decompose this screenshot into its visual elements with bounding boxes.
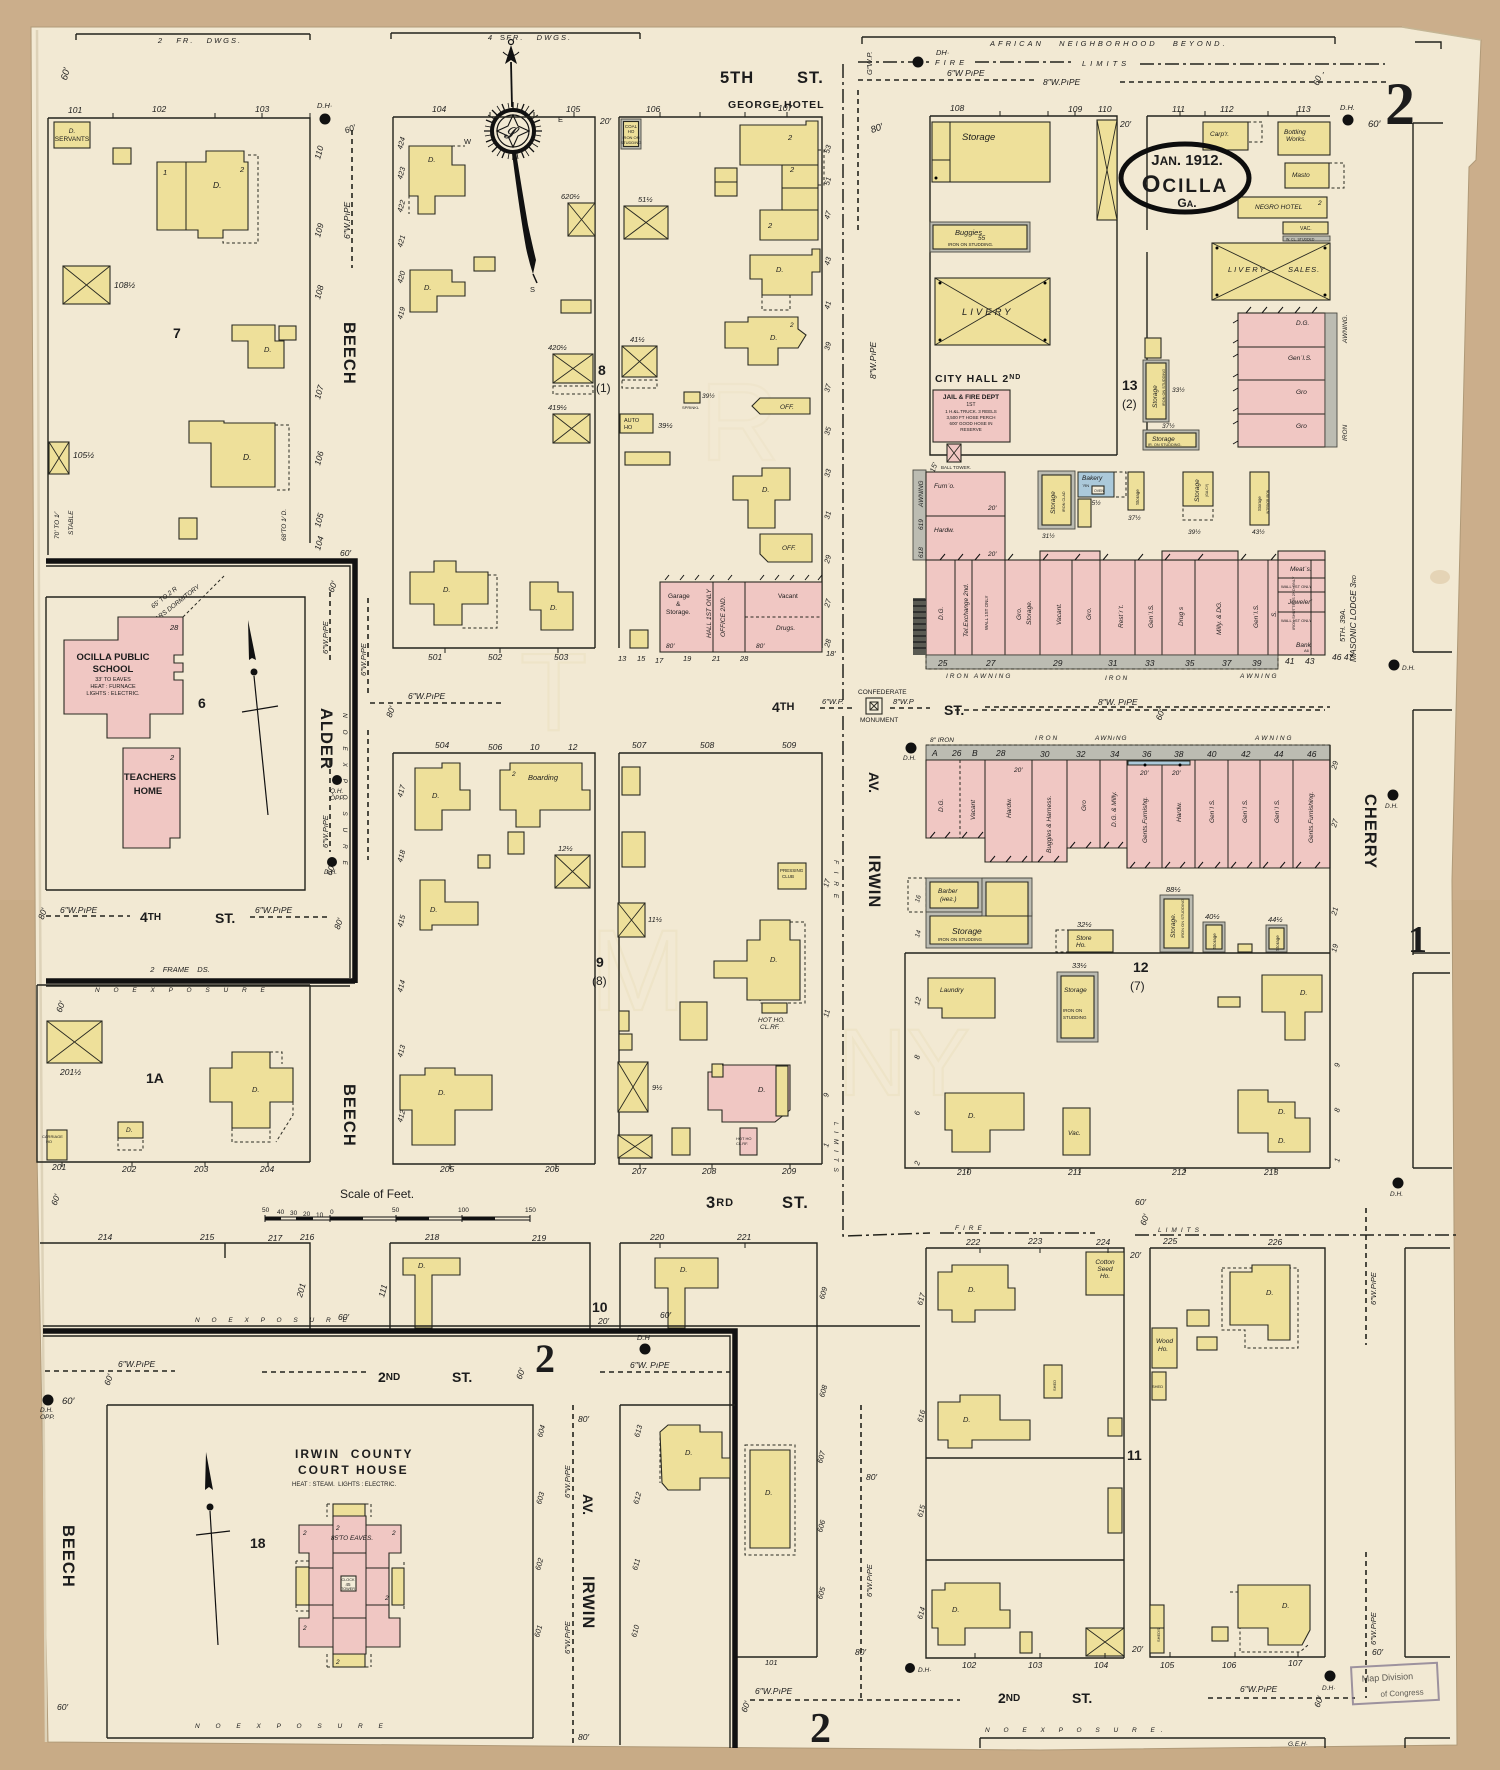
svg-text:6″W.PıPE: 6″W.PıPE [1369, 1611, 1378, 1645]
svg-text:D.: D. [1266, 1288, 1274, 1297]
svg-text:G″W.P.: G″W.P. [865, 52, 874, 76]
svg-text:8: 8 [598, 362, 606, 378]
svg-text:CL.RF.: CL.RF. [736, 1141, 748, 1146]
svg-text:LIMITS: LIMITS [1158, 1227, 1203, 1234]
svg-text:D.: D. [213, 180, 222, 190]
svg-text:Gro: Gro [1296, 389, 1307, 396]
svg-text:105½: 105½ [73, 450, 94, 460]
svg-text:11½: 11½ [648, 915, 663, 924]
svg-text:Genʾl S.: Genʾl S. [1241, 799, 1249, 823]
svg-text:509: 509 [782, 740, 796, 750]
svg-text:BALL TOWER.: BALL TOWER. [941, 465, 971, 470]
svg-text:11: 11 [1127, 1447, 1142, 1463]
svg-text:101: 101 [765, 1658, 778, 1667]
svg-text:213: 213 [1263, 1167, 1278, 1177]
svg-text:(GA.CY): (GA.CY) [1205, 484, 1209, 497]
svg-text:0: 0 [330, 1209, 334, 1216]
svg-text:6″W.PıPE: 6″W.PıPE [118, 1359, 156, 1369]
svg-text:31½: 31½ [1042, 532, 1055, 540]
svg-text:Ho.: Ho. [1158, 1346, 1168, 1353]
svg-text:6: 6 [198, 695, 206, 711]
svg-text:OFFICE 2ND.: OFFICE 2ND. [720, 596, 727, 637]
svg-text:(7): (7) [1130, 979, 1145, 993]
svg-text:Tel.Exchange 2nd.: Tel.Exchange 2nd. [963, 583, 970, 637]
svg-text:FIRE: FIRE [935, 58, 968, 67]
svg-text:18: 18 [250, 1535, 266, 1551]
svg-text:Gro.: Gro. [1086, 607, 1093, 620]
svg-text:8″W.PıPE: 8″W.PıPE [868, 341, 878, 379]
svg-text:HEAT : FURNACE: HEAT : FURNACE [90, 684, 136, 690]
svg-text:60′: 60′ [660, 1310, 671, 1320]
svg-text:D.: D. [550, 603, 558, 612]
svg-text:55: 55 [978, 235, 986, 242]
svg-text:AV.: AV. [580, 1494, 596, 1515]
svg-text:Genʾl.S.: Genʾl.S. [1147, 604, 1155, 628]
svg-text:39½: 39½ [658, 421, 673, 430]
svg-text:80′: 80′ [666, 643, 675, 650]
svg-text:Genʾl S.: Genʾl S. [1273, 799, 1281, 823]
svg-text:Storage.: Storage. [666, 609, 691, 616]
svg-text:219: 219 [531, 1233, 546, 1243]
svg-text:6″W.PıPE: 6″W.PıPE [1240, 1684, 1278, 1694]
svg-text:CHERRY: CHERRY [1361, 794, 1379, 869]
svg-text:D.: D. [762, 485, 770, 494]
svg-text:105: 105 [566, 104, 580, 114]
svg-text:Hardw.: Hardw. [1006, 798, 1013, 818]
svg-text:Jewelerʿ: Jewelerʿ [1287, 598, 1313, 606]
svg-text:D.H·: D.H· [317, 101, 332, 110]
svg-text:2: 2 [335, 1659, 340, 1666]
svg-text:OCILLA PUBLIC: OCILLA PUBLIC [76, 652, 149, 663]
svg-text:D.: D. [69, 128, 76, 135]
svg-text:212: 212 [1171, 1167, 1186, 1177]
svg-text:INTERIOR IRON: INTERIOR IRON [1266, 489, 1270, 514]
svg-text:60′: 60′ [1135, 1197, 1146, 1207]
svg-text:N O E X P O S U R E.: N O E X P O S U R E. [985, 1727, 1169, 1734]
svg-text:D.H·: D.H· [918, 1667, 931, 1674]
svg-text:(1): (1) [596, 381, 611, 395]
svg-text:2: 2 [391, 1530, 396, 1537]
svg-text:D.: D. [243, 452, 252, 462]
svg-text:ST.: ST. [1072, 1690, 1092, 1706]
svg-text:506: 506 [488, 742, 502, 752]
svg-text:IRON ON: IRON ON [1063, 1008, 1082, 1013]
svg-text:VАC.: VАC. [1300, 226, 1312, 232]
svg-text:103: 103 [1028, 1660, 1042, 1670]
svg-text:D.: D. [1282, 1601, 1290, 1610]
svg-text:SHEDS: SHEDS [1156, 1628, 1161, 1642]
svg-text:Milly. & DG.: Milly. & DG. [1216, 601, 1223, 635]
svg-text:34: 34 [1110, 749, 1120, 759]
svg-text:D.: D. [776, 265, 784, 274]
svg-text:D.: D. [1278, 1136, 1286, 1145]
svg-text:Garage: Garage [668, 593, 690, 600]
svg-text:210: 210 [956, 1167, 971, 1177]
svg-text:26: 26 [951, 748, 962, 758]
svg-text:2 FR. DWGS.: 2 FR. DWGS. [157, 36, 242, 45]
svg-text:40½: 40½ [1205, 912, 1220, 921]
svg-text:Masto: Masto [1292, 172, 1310, 179]
svg-text:19: 19 [683, 654, 692, 663]
svg-text:33′ TO EAVES: 33′ TO EAVES [95, 677, 131, 683]
svg-text:D.H: D.H [637, 1333, 651, 1342]
svg-text:WALL 1ST ONLY: WALL 1ST ONLY [1281, 618, 1312, 623]
svg-text:L I M I T S: L I M I T S [832, 1122, 839, 1174]
svg-text:419½: 419½ [548, 403, 568, 412]
svg-text:2: 2 [789, 165, 795, 174]
svg-text:Cotton: Cotton [1095, 1259, 1115, 1266]
svg-text:203: 203 [193, 1164, 208, 1174]
svg-text:SHED: SHED [1052, 1380, 1057, 1391]
svg-text:7: 7 [173, 325, 181, 341]
svg-text:6″W.PıPE: 6″W.PıPE [563, 1464, 572, 1498]
svg-text:Storage: Storage [1194, 479, 1201, 502]
svg-text:111: 111 [1172, 104, 1185, 114]
svg-text:6″W.PıPE: 6″W.PıPE [321, 620, 330, 654]
svg-text:1: 1 [1408, 919, 1427, 961]
svg-text:D.G. & Milly.: D.G. & Milly. [1111, 791, 1118, 827]
svg-text:5TH: 5TH [720, 69, 754, 87]
svg-text:Ho.: Ho. [1100, 1273, 1110, 1280]
svg-text:IRON ON STUDDING: IRON ON STUDDING [1162, 369, 1166, 406]
svg-text:N O E X P O S U R E: N O E X P O S U R E [95, 987, 271, 994]
svg-text:41½: 41½ [630, 335, 645, 344]
svg-text:2: 2 [384, 1595, 389, 1602]
svg-text:20′: 20′ [597, 1316, 609, 1326]
svg-text:2: 2 [239, 165, 245, 174]
svg-text:508: 508 [700, 740, 714, 750]
svg-text:S: S [530, 285, 535, 294]
svg-text:ST.: ST. [782, 1194, 809, 1212]
svg-text:D.: D. [685, 1448, 693, 1457]
svg-text:2ND: 2ND [998, 1690, 1020, 1706]
svg-text:(8): (8) [592, 974, 607, 988]
svg-text:30: 30 [290, 1210, 298, 1217]
svg-text:208: 208 [701, 1166, 716, 1176]
svg-text:AFRICAN NEIGHBORHOOD BEYON: AFRICAN NEIGHBORHOOD BEYOND. [989, 39, 1228, 48]
svg-text:9: 9 [596, 954, 604, 970]
svg-text:TOWER: TOWER [341, 1587, 355, 1591]
svg-text:150: 150 [525, 1207, 536, 1214]
svg-text:8″W.PıPE: 8″W.PıPE [1043, 77, 1081, 87]
svg-text:(2): (2) [1122, 397, 1137, 411]
svg-text:8″ IRON: 8″ IRON [930, 737, 954, 744]
svg-text:107: 107 [778, 103, 792, 113]
svg-text:88½: 88½ [1166, 885, 1181, 894]
svg-text:D.H.: D.H. [903, 755, 916, 762]
svg-text:JAN. 1912.: JAN. 1912. [1151, 152, 1223, 169]
svg-text:105: 105 [1160, 1660, 1174, 1670]
svg-text:Storage: Storage [1050, 491, 1057, 514]
svg-text:Gents.Furnishg.: Gents.Furnishg. [1142, 797, 1149, 843]
svg-text:221: 221 [736, 1232, 751, 1242]
svg-text:D.: D. [264, 345, 272, 354]
svg-text:20′: 20′ [1139, 770, 1149, 777]
svg-text:600′ GOOD HOSE IN: 600′ GOOD HOSE IN [949, 421, 992, 426]
svg-text:AWNING.: AWNING. [1342, 314, 1349, 344]
svg-text:10: 10 [592, 1299, 608, 1315]
svg-text:32½: 32½ [1077, 920, 1092, 929]
svg-text:2: 2 [169, 753, 175, 762]
svg-text:D.H.: D.H. [1385, 803, 1398, 810]
svg-text:IRWIN: IRWIN [579, 1576, 597, 1629]
svg-text:1A: 1A [146, 1070, 164, 1086]
svg-text:Boarding: Boarding [528, 773, 559, 782]
svg-text:107: 107 [1288, 1658, 1302, 1668]
svg-text:204: 204 [259, 1164, 274, 1174]
svg-text:S.: S. [1271, 611, 1278, 617]
svg-text:R: R [700, 361, 779, 484]
svg-text:CL.RF.: CL.RF. [760, 1024, 780, 1031]
svg-text:15: 15 [637, 654, 646, 663]
svg-text:40: 40 [277, 1209, 285, 1216]
svg-text:Storage.: Storage. [1170, 913, 1177, 938]
svg-text:AUTO: AUTO [624, 418, 640, 424]
svg-text:43: 43 [1305, 656, 1315, 666]
svg-text:STABLE: STABLE [68, 510, 75, 535]
svg-text:Storage: Storage [1064, 987, 1087, 994]
svg-text:218: 218 [424, 1232, 439, 1242]
svg-text:ST.: ST. [215, 910, 235, 926]
svg-text:620½: 620½ [561, 192, 581, 201]
svg-text:8″W. PıPE: 8″W. PıPE [1098, 697, 1138, 707]
svg-text:40: 40 [1207, 749, 1217, 759]
svg-text:D.: D. [770, 333, 778, 342]
svg-text:IRON ON STUDDING: IRON ON STUDDING [1180, 899, 1185, 938]
svg-text:OCILLA: OCILLA [1142, 171, 1229, 198]
svg-text:D.: D. [952, 1605, 960, 1614]
svg-text:SАLES.: SАLES. [1288, 265, 1320, 274]
svg-text:85′TO EAVES.: 85′TO EAVES. [331, 1535, 373, 1542]
svg-text:OPP.: OPP. [330, 795, 345, 802]
svg-text:DH·: DH· [936, 48, 949, 57]
svg-text:2ND: 2ND [378, 1369, 400, 1385]
svg-text:LIVERY: LIVERY [1228, 265, 1266, 274]
svg-text:ʾRN: ʾRN [1082, 483, 1089, 488]
svg-text:F I R E: F I R E [832, 860, 839, 901]
svg-text:1 H.&L.TRUCK. 3 REELS: 1 H.&L.TRUCK. 3 REELS [945, 409, 997, 414]
svg-text:Genʾl.S.: Genʾl.S. [1288, 354, 1312, 362]
svg-text:S: S [500, 33, 505, 42]
svg-text:60′: 60′ [57, 1702, 68, 1712]
svg-text:205: 205 [439, 1164, 454, 1174]
svg-text:6″W.PıPE: 6″W.PıPE [255, 905, 293, 915]
svg-text:215: 215 [199, 1232, 214, 1242]
svg-text:4TH: 4TH [772, 699, 795, 715]
svg-text:IRWIN: IRWIN [865, 855, 883, 908]
svg-text:25: 25 [937, 658, 948, 668]
svg-text:102: 102 [152, 104, 166, 114]
svg-text:206: 206 [544, 1164, 559, 1174]
svg-text:HEAT : STEAM. LIGHTS : ELECTR: HEAT : STEAM. LIGHTS : ELECTRIC. [292, 1482, 396, 1488]
svg-text:Store: Store [1076, 935, 1092, 942]
svg-text:HOT HO.: HOT HO. [758, 1017, 785, 1024]
svg-text:2: 2 [535, 1336, 555, 1381]
svg-text:6″W PıPE: 6″W PıPE [947, 68, 985, 78]
svg-text:207: 207 [631, 1166, 646, 1176]
svg-text:IRON: IRON [1035, 735, 1059, 742]
svg-text:46 47: 46 47 [1332, 652, 1354, 662]
svg-text:2: 2 [1385, 71, 1415, 137]
svg-text:Gro: Gro [1296, 423, 1307, 430]
svg-text:618: 618 [918, 547, 925, 558]
svg-text:17: 17 [655, 656, 664, 665]
svg-text:D.G.: D.G. [1296, 320, 1310, 327]
svg-text:101: 101 [68, 105, 82, 115]
svg-text:504: 504 [435, 740, 449, 750]
svg-text:D.: D. [432, 791, 440, 800]
svg-text:420½: 420½ [548, 343, 568, 352]
svg-text:Storage: Storage [1275, 935, 1280, 951]
svg-text:IRON AWNING: IRON AWNING [946, 673, 1012, 680]
svg-text:D.H.: D.H. [1402, 665, 1415, 672]
svg-text:ST.: ST. [797, 69, 824, 87]
svg-text:ST.: ST. [452, 1369, 472, 1385]
svg-text:D.: D. [968, 1285, 976, 1294]
svg-text:Hardw.: Hardw. [1176, 802, 1183, 822]
svg-text:OPP.: OPP. [40, 1414, 55, 1421]
svg-text:D.: D. [443, 585, 451, 594]
svg-text:Vacant: Vacant [970, 799, 977, 820]
svg-text:20′: 20′ [1013, 767, 1023, 774]
svg-text:AWNıNG: AWNıNG [1094, 735, 1128, 742]
svg-text:44: 44 [1274, 749, 1284, 759]
svg-text:IRWIN COUNTY: IRWIN COUNTY [295, 1447, 413, 1461]
svg-text:30: 30 [1040, 749, 1050, 759]
svg-text:Drug s: Drug s [1178, 606, 1185, 626]
svg-text:50: 50 [392, 1207, 400, 1214]
svg-text:Gents.Furnishing.: Gents.Furnishing. [1308, 792, 1315, 843]
svg-text:20′: 20′ [987, 505, 997, 512]
svg-text:CITY HALL 2ND: CITY HALL 2ND [935, 373, 1021, 385]
svg-text:20′: 20′ [1129, 1250, 1141, 1260]
svg-text:2 FRAME DS.: 2 FRAME DS. [149, 965, 210, 974]
svg-text:HOME: HOME [134, 786, 163, 797]
svg-text:Bakery: Bakery [1082, 475, 1103, 482]
svg-text:D.: D. [765, 1488, 773, 1497]
svg-text:20′: 20′ [987, 551, 997, 558]
svg-text:33½: 33½ [1072, 961, 1087, 970]
svg-text:2: 2 [767, 221, 773, 230]
svg-text:80′: 80′ [578, 1732, 589, 1742]
svg-text:6″W.PıPE: 6″W.PıPE [865, 1563, 874, 1597]
svg-text:Wood: Wood [1156, 1338, 1173, 1345]
svg-text:226: 226 [1267, 1237, 1282, 1247]
svg-text:Storage: Storage [1152, 385, 1159, 408]
svg-text:Storage: Storage [1257, 496, 1262, 511]
svg-text:2: 2 [810, 1706, 831, 1752]
svg-text:SPRINKL: SPRINKL [682, 405, 700, 410]
svg-text:W. CL. STUDDED: W. CL. STUDDED [1286, 238, 1315, 242]
svg-text:224: 224 [1095, 1237, 1110, 1247]
svg-text:N O E X P O S U R E: N O E X P O S U R E [195, 1723, 390, 1730]
svg-text:D.: D. [418, 1261, 426, 1270]
svg-text:HO: HO [628, 129, 635, 134]
svg-text:10: 10 [316, 1212, 324, 1219]
svg-text:37½: 37½ [1162, 422, 1175, 430]
svg-text:31: 31 [1108, 658, 1118, 668]
svg-text:AWNING: AWNING [918, 480, 925, 508]
svg-text:FIRE: FIRE [955, 1225, 986, 1232]
svg-text:D.H.: D.H. [1340, 103, 1355, 112]
svg-text:Storage: Storage [1152, 436, 1175, 443]
svg-text:27: 27 [985, 658, 996, 668]
svg-text:PRESSING: PRESSING [780, 868, 804, 873]
svg-text:Storage: Storage [962, 132, 995, 143]
svg-text:214: 214 [97, 1232, 112, 1242]
svg-text:D.H.: D.H. [40, 1407, 53, 1414]
svg-text:W: W [464, 137, 472, 146]
svg-text:80′: 80′ [866, 1472, 877, 1482]
svg-text:42: 42 [1241, 749, 1251, 759]
svg-text:LIMITS: LIMITS [1082, 59, 1130, 68]
svg-text:D.: D. [968, 1111, 976, 1120]
svg-text:IRON: IRON [1342, 424, 1349, 441]
svg-text:Hardw.: Hardw. [934, 527, 954, 534]
svg-text:1ST: 1ST [966, 402, 975, 408]
svg-text:Q.H.: Q.H. [330, 788, 344, 795]
svg-text:3,500 FT HOSE PERCH: 3,500 FT HOSE PERCH [947, 415, 996, 420]
svg-text:220: 220 [649, 1232, 664, 1242]
svg-text:COURT HOUSE: COURT HOUSE [298, 1463, 409, 1477]
svg-text:Laundry: Laundry [940, 987, 964, 994]
svg-text:T: T [520, 631, 587, 754]
svg-text:507: 507 [632, 740, 646, 750]
svg-text:202: 202 [121, 1164, 136, 1174]
svg-text:Bottling: Bottling [1284, 129, 1306, 136]
svg-text:GEORGE HOTEL: GEORGE HOTEL [728, 99, 825, 111]
svg-text:D.: D. [126, 1127, 133, 1134]
svg-text:216: 216 [299, 1232, 314, 1242]
svg-text:6″W.PıPE: 6″W.PıPE [563, 1620, 572, 1654]
svg-text:13: 13 [1122, 377, 1138, 393]
svg-text:Carpʹr.: Carpʹr. [1210, 130, 1229, 138]
svg-text:209: 209 [781, 1166, 796, 1176]
svg-text:20′: 20′ [1119, 119, 1131, 129]
svg-text:60′: 60′ [340, 548, 351, 558]
svg-text:N O E X P O S U R E: N O E X P O S U R E [195, 1317, 352, 1324]
svg-text:18′: 18′ [826, 649, 836, 658]
svg-text:1: 1 [163, 168, 167, 177]
svg-text:102: 102 [962, 1660, 976, 1670]
svg-text:D.: D. [963, 1415, 971, 1424]
svg-text:6″W.PıPE: 6″W.PıPE [408, 691, 446, 701]
svg-text:Buggies & Harness.: Buggies & Harness. [1046, 795, 1053, 853]
svg-text:A: A [931, 748, 938, 758]
svg-text:&: & [676, 601, 681, 608]
svg-text:D.: D. [680, 1265, 688, 1274]
svg-text:Restʾrʾt.: Restʾrʾt. [1117, 604, 1125, 628]
svg-text:29: 29 [1052, 658, 1063, 668]
svg-text:D.: D. [1278, 1107, 1286, 1116]
svg-text:Genʾl S.: Genʾl S. [1208, 799, 1216, 823]
svg-text:OFF.: OFF. [780, 404, 794, 411]
svg-text:33: 33 [1145, 658, 1155, 668]
svg-text:GA.: GA. [1177, 196, 1196, 210]
svg-text:LIGHTS : ELECTRIC.: LIGHTS : ELECTRIC. [86, 691, 140, 697]
svg-text:Storage.: Storage. [1026, 600, 1033, 625]
svg-text:503: 503 [554, 652, 568, 662]
svg-text:Furnʾo.: Furnʾo. [934, 482, 955, 490]
svg-text:6″W.PıPE: 6″W.PıPE [342, 201, 352, 239]
svg-text:43½: 43½ [1252, 528, 1265, 536]
svg-text:28: 28 [169, 623, 179, 632]
svg-text:STUDDING: STUDDING [1063, 1015, 1087, 1020]
svg-text:Drugs.: Drugs. [776, 625, 795, 632]
svg-text:B: B [972, 748, 978, 758]
svg-text:STUDDING: STUDDING [621, 140, 642, 145]
svg-text:BEECH: BEECH [59, 1525, 77, 1588]
